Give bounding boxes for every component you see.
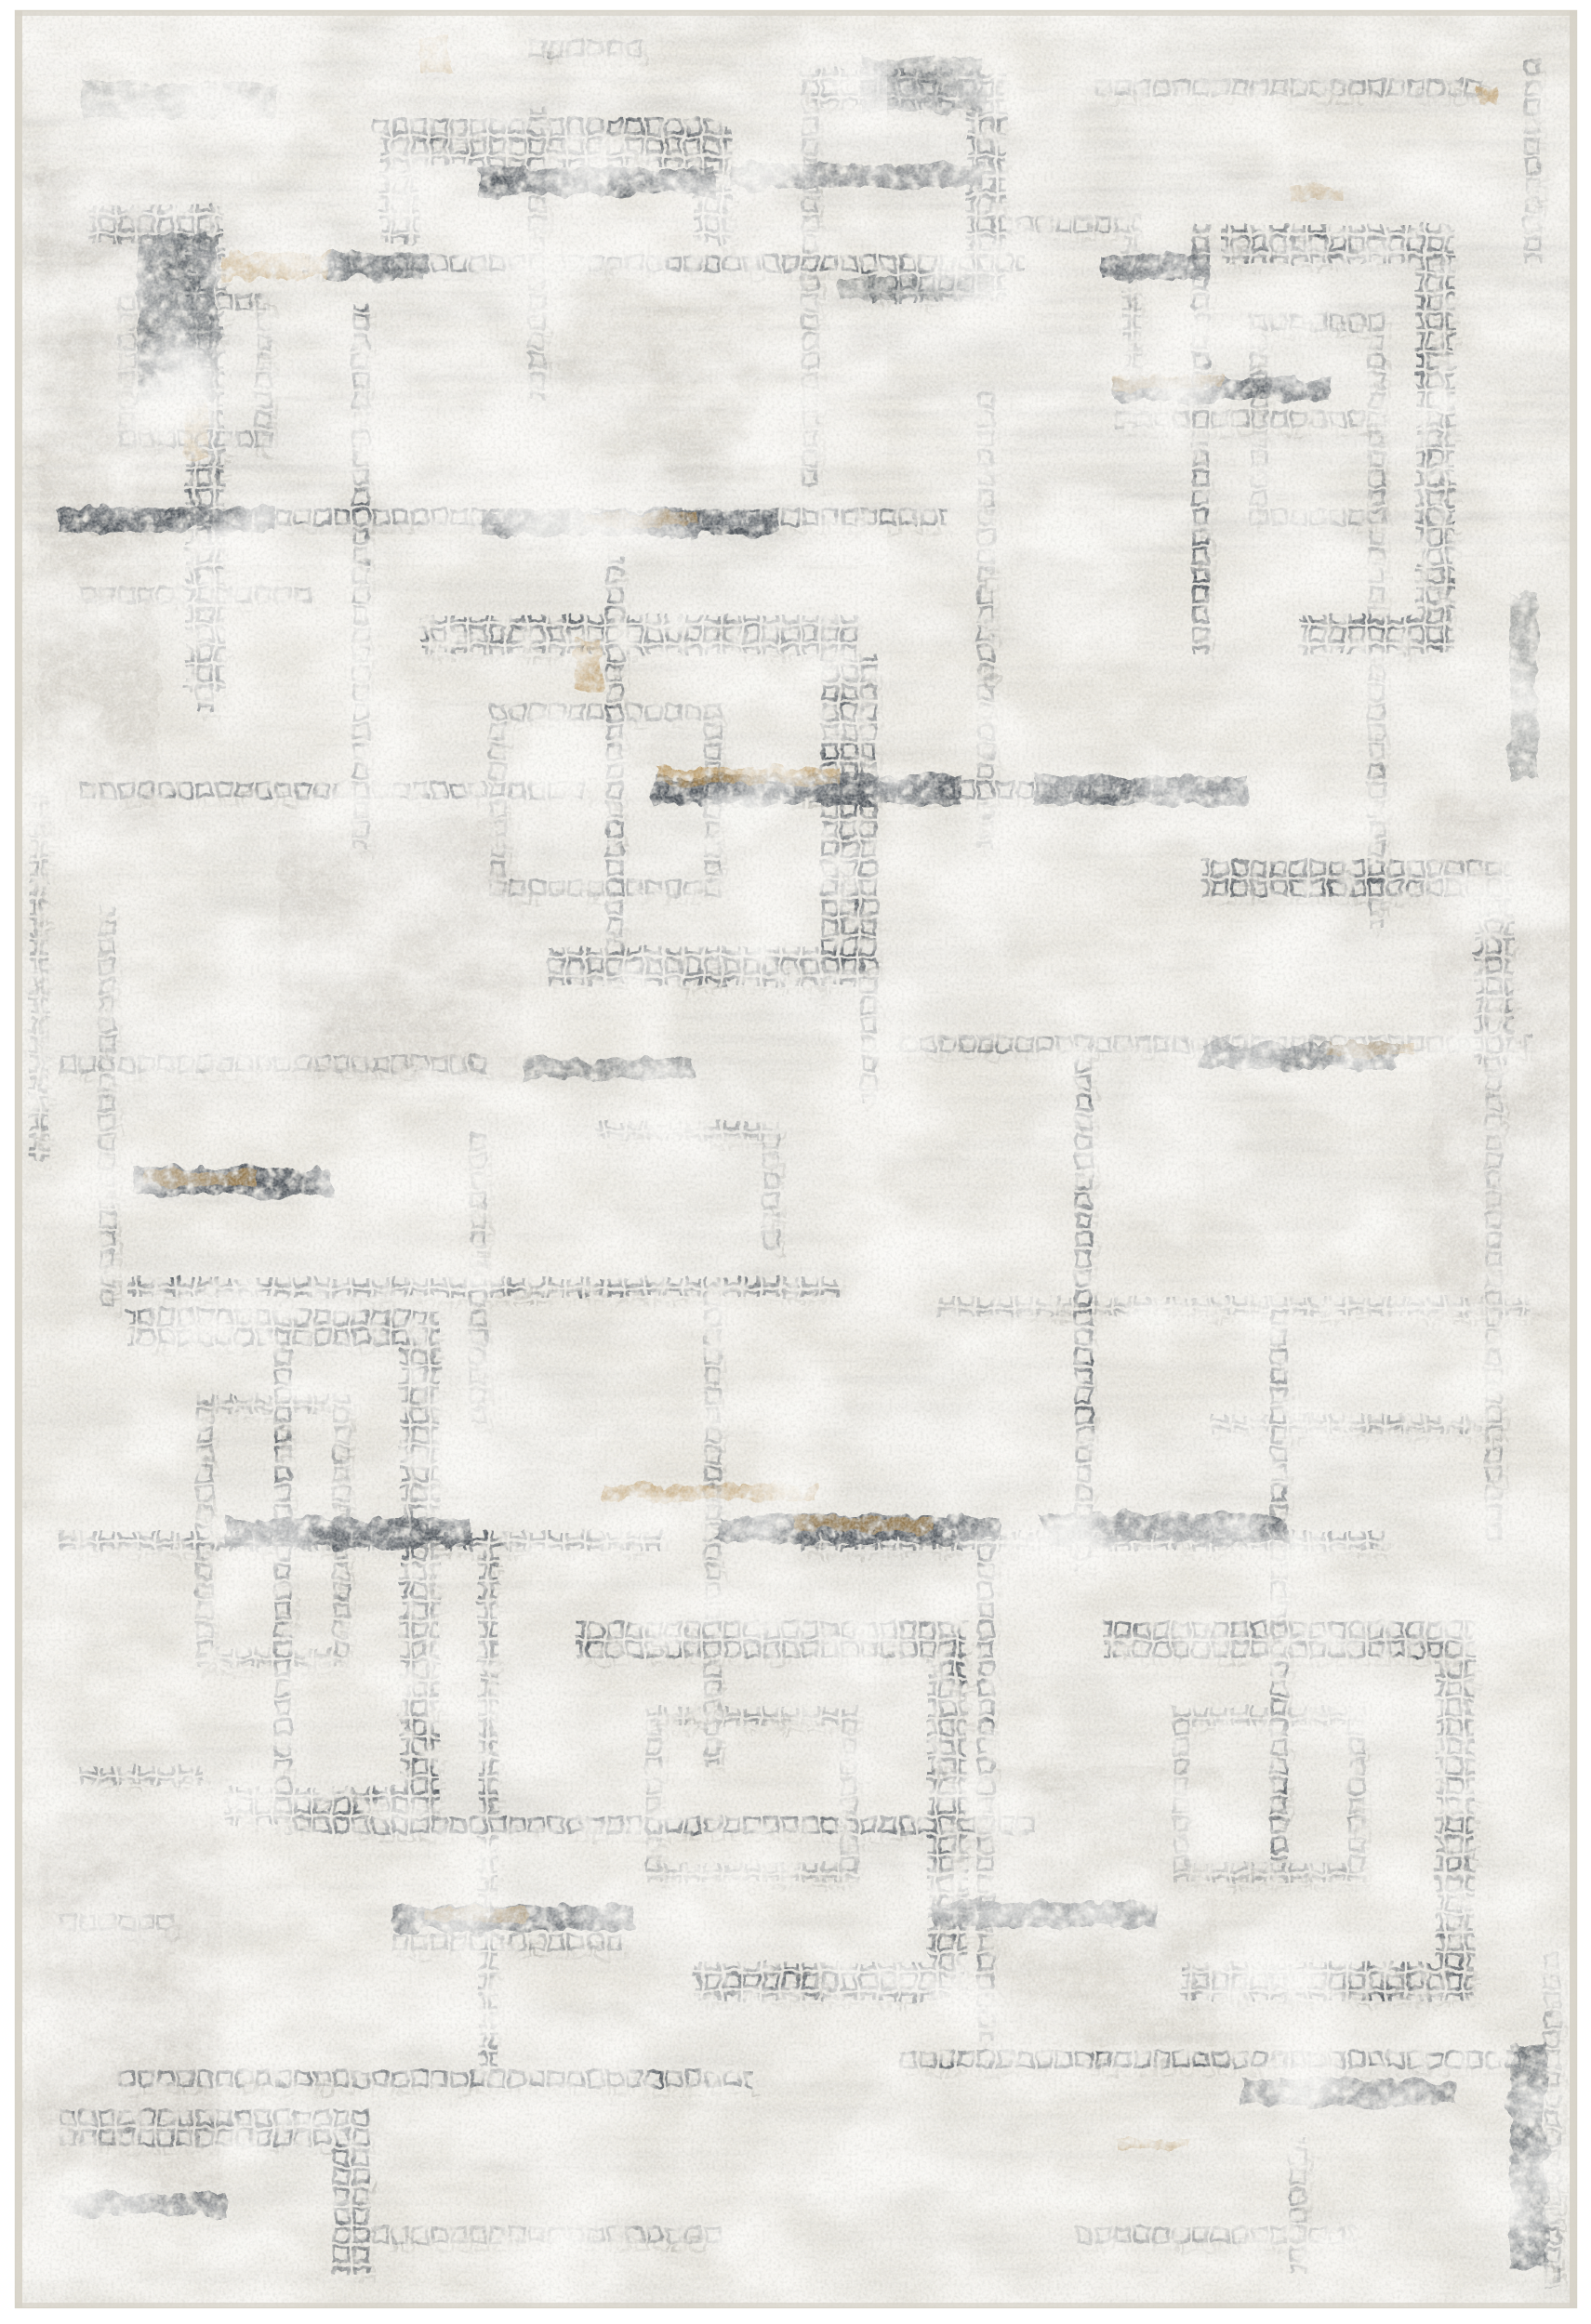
grain-dark-layer bbox=[15, 10, 1577, 2308]
rug-photo: Product photo of a distressed modern are… bbox=[0, 0, 1591, 2324]
rug bbox=[15, 10, 1577, 2308]
rug-canvas bbox=[0, 0, 1591, 2324]
